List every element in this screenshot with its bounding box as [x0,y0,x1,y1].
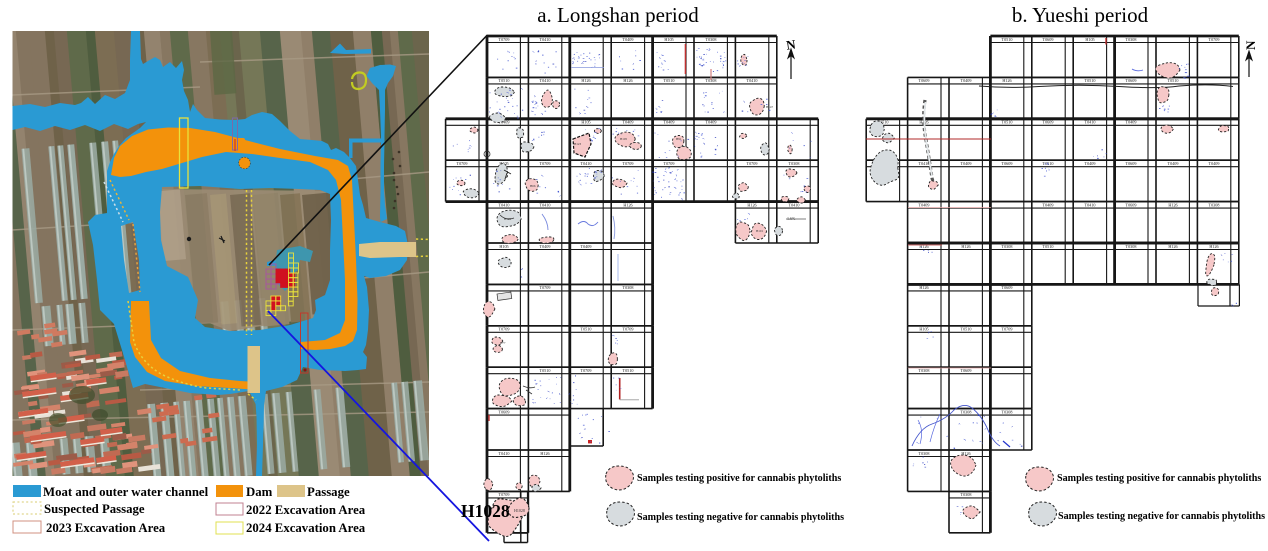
svg-text:T0308: T0308 [623,285,634,290]
svg-text:T0308: T0308 [1126,244,1137,249]
svg-text:T0410: T0410 [789,202,800,207]
svg-text:T0308: T0308 [961,492,972,497]
svg-text:T0709: T0709 [623,327,634,332]
svg-text:H126: H126 [623,78,632,83]
svg-text:T0308: T0308 [706,37,717,42]
svg-text:Samples testing negative for c: Samples testing negative for cannabis ph… [637,512,844,523]
svg-text:T0308: T0308 [961,409,972,414]
svg-text:T0409: T0409 [623,37,634,42]
svg-text:H126: H126 [1209,244,1218,249]
svg-text:T0409: T0409 [623,120,634,125]
svg-text:H126: H126 [961,244,970,249]
svg-text:T0709: T0709 [499,37,510,42]
svg-text:T0410: T0410 [1085,120,1096,125]
svg-text:T0609: T0609 [1126,202,1137,207]
svg-text:T0308: T0308 [919,368,930,373]
svg-text:H105: H105 [581,120,590,125]
svg-text:T0308: T0308 [1209,202,1220,207]
svg-text:T0609: T0609 [1043,120,1054,125]
svg-text:T0410: T0410 [581,161,592,166]
svg-text:Samples testing positive for c: Samples testing positive for cannabis ph… [1057,473,1261,484]
svg-text:T0409: T0409 [1043,202,1054,207]
svg-text:Suspected Passage: Suspected Passage [44,502,145,516]
svg-text:T0609: T0609 [919,78,930,83]
svg-text:T0510: T0510 [1085,78,1096,83]
svg-text:H126: H126 [1168,244,1177,249]
svg-text:T0709: T0709 [499,327,510,332]
svg-text:H105: H105 [620,137,627,141]
svg-text:Samples testing positive for c: Samples testing positive for cannabis ph… [637,473,841,484]
svg-text:T0510: T0510 [961,327,972,332]
svg-text:T0410: T0410 [540,202,551,207]
svg-text:b. Yueshi period: b. Yueshi period [1012,3,1149,27]
svg-text:H126: H126 [747,202,756,207]
svg-text:T0410: T0410 [919,161,930,166]
svg-text:H91: H91 [676,137,682,141]
svg-text:H126: H126 [623,202,632,207]
svg-text:T0510: T0510 [1043,244,1054,249]
svg-text:1.6%: 1.6% [787,216,796,221]
svg-text:T0409: T0409 [706,120,717,125]
svg-text:H126: H126 [1168,202,1177,207]
svg-text:T0609: T0609 [961,368,972,373]
svg-text:H147: H147 [766,105,773,109]
svg-text:Moat and outer water channel: Moat and outer water channel [43,485,209,499]
svg-text:H105: H105 [499,244,508,249]
svg-text:H126: H126 [919,285,928,290]
svg-text:T0709: T0709 [664,161,675,166]
svg-text:T0609: T0609 [1002,285,1013,290]
svg-text:T0609: T0609 [1002,161,1013,166]
svg-text:2024 Excavation Area: 2024 Excavation Area [246,521,366,535]
svg-text:Dam: Dam [246,485,273,499]
svg-text:T0409: T0409 [1085,161,1096,166]
svg-text:T0410: T0410 [747,78,758,83]
svg-text:T0709: T0709 [499,492,510,497]
svg-text:H66: H66 [530,184,536,188]
svg-text:T0409: T0409 [1209,161,1220,166]
svg-text:T0308: T0308 [1002,244,1013,249]
svg-text:H129: H129 [504,217,511,221]
svg-text:H126: H126 [540,451,549,456]
svg-text:T0709: T0709 [581,368,592,373]
svg-text:T0510: T0510 [1168,78,1179,83]
svg-text:T0709: T0709 [623,161,634,166]
svg-text:Passage: Passage [307,485,350,499]
svg-text:Samples testing negative for c: Samples testing negative for cannabis ph… [1058,511,1265,522]
svg-text:T0308: T0308 [1126,37,1137,42]
svg-text:T0709: T0709 [540,161,551,166]
svg-text:T0409: T0409 [961,161,972,166]
svg-text:H105: H105 [919,327,928,332]
svg-text:T0510: T0510 [664,78,675,83]
svg-text:T0510: T0510 [1002,37,1013,42]
svg-text:T0410: T0410 [499,451,510,456]
svg-text:T0709: T0709 [1209,37,1220,42]
svg-text:T0409: T0409 [581,244,592,249]
svg-text:T0410: T0410 [499,202,510,207]
svg-text:H105: H105 [1085,37,1094,42]
svg-text:T0409: T0409 [1126,120,1137,125]
svg-text:T0510: T0510 [623,368,634,373]
svg-text:T0409: T0409 [540,244,551,249]
svg-text:T0709: T0709 [1002,327,1013,332]
svg-text:T0709: T0709 [747,161,758,166]
svg-text:H126: H126 [1002,78,1011,83]
svg-text:T0410: T0410 [1085,202,1096,207]
svg-text:T0609: T0609 [1126,161,1137,166]
svg-text:T0410: T0410 [540,78,551,83]
svg-text:T0409: T0409 [961,78,972,83]
svg-text:T0308: T0308 [789,161,800,166]
svg-text:T0409: T0409 [664,120,675,125]
svg-text:T0510: T0510 [581,327,592,332]
svg-text:T0308: T0308 [919,451,930,456]
svg-text:T0410: T0410 [540,37,551,42]
svg-text:H105: H105 [664,37,673,42]
svg-text:T0709: T0709 [457,161,468,166]
svg-text:T0609: T0609 [1126,78,1137,83]
svg-text:T0609: T0609 [1043,37,1054,42]
svg-text:T0510: T0510 [499,78,510,83]
svg-text:T0510: T0510 [540,368,551,373]
svg-text:T0709: T0709 [540,285,551,290]
svg-text:H1028: H1028 [514,508,525,513]
svg-text:T0510: T0510 [1002,120,1013,125]
svg-text:T0609: T0609 [499,409,510,414]
svg-text:T0409: T0409 [1168,161,1179,166]
svg-text:H101: H101 [756,229,763,233]
svg-text:H1028: H1028 [461,501,510,521]
svg-text:2023 Excavation Area: 2023 Excavation Area [46,521,166,535]
svg-text:a. Longshan period: a. Longshan period [537,3,699,27]
svg-text:H77: H77 [500,341,506,345]
svg-text:H123: H123 [574,142,581,146]
svg-text:T0409: T0409 [919,202,930,207]
svg-text:T0308: T0308 [1002,409,1013,414]
svg-text:N: N [1243,40,1258,50]
svg-text:2022 Excavation Area: 2022 Excavation Area [246,503,366,517]
svg-text:H126: H126 [581,78,590,83]
